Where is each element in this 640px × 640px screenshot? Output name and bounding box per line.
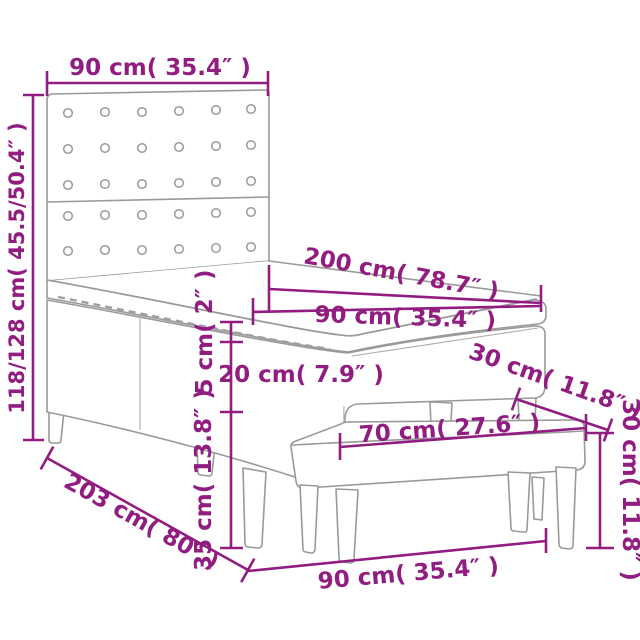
dim-mattress-thickness-label: 5 cm( 2″ ) xyxy=(192,270,218,395)
dim-bed-height-label: 118/128 cm( 45.5/50.4″ ) xyxy=(5,122,29,413)
bench-leg xyxy=(532,477,544,520)
bench-leg xyxy=(508,472,530,532)
dim-bench-height-label: 30 cm( 11.8″ ) xyxy=(617,399,640,581)
dimension-diagram: 90 cm( 35.4″ ) 118/128 cm( 45.5/50.4″ ) … xyxy=(0,0,640,640)
headboard xyxy=(47,90,269,281)
bed-diagram-canvas: 90 cm( 35.4″ ) 118/128 cm( 45.5/50.4″ ) … xyxy=(0,0,640,640)
dim-bed-height: 118/128 cm( 45.5/50.4″ ) xyxy=(5,95,44,440)
dim-bench-width: 90 cm( 35.4″ ) xyxy=(248,528,546,595)
bed-leg xyxy=(243,468,266,548)
dim-base-height-label: 20 cm( 7.9″ ) xyxy=(218,362,384,388)
bench-leg xyxy=(556,467,576,549)
dim-headboard-width-label: 90 cm( 35.4″ ) xyxy=(69,55,251,81)
dim-floor-length: 203 cm( 80″ ) xyxy=(41,447,255,583)
bench-leg xyxy=(300,485,318,553)
bench-leg xyxy=(336,489,358,563)
